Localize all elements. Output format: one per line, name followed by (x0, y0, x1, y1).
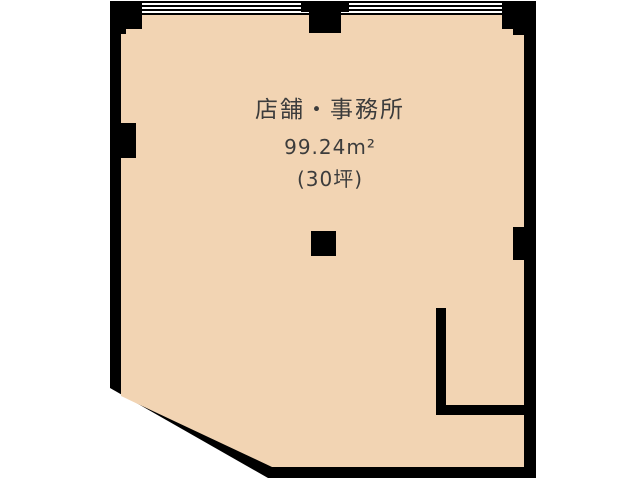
room-area-tsubo: (30坪) (180, 163, 480, 192)
pillar-top-left (110, 1, 142, 29)
pillar-top-right (502, 1, 536, 29)
floor-plan: 店舗・事務所 99.24m² (30坪) (0, 0, 640, 480)
pillar-top-middle (309, 1, 341, 33)
interior-wall-horizontal (436, 405, 524, 415)
pillar-top-left-step (110, 28, 126, 34)
floor-plan-drawing (0, 0, 640, 480)
pillar-left-middle (110, 123, 136, 158)
pillar-center (311, 231, 336, 256)
pillar-right-middle (513, 227, 536, 260)
room-area-sqm: 99.24m² (180, 135, 480, 159)
interior-wall-vertical (436, 308, 446, 415)
pillar-top-right-step (513, 28, 536, 35)
room-title: 店舗・事務所 (180, 96, 480, 126)
room-labels: 店舗・事務所 99.24m² (30坪) (180, 96, 480, 192)
